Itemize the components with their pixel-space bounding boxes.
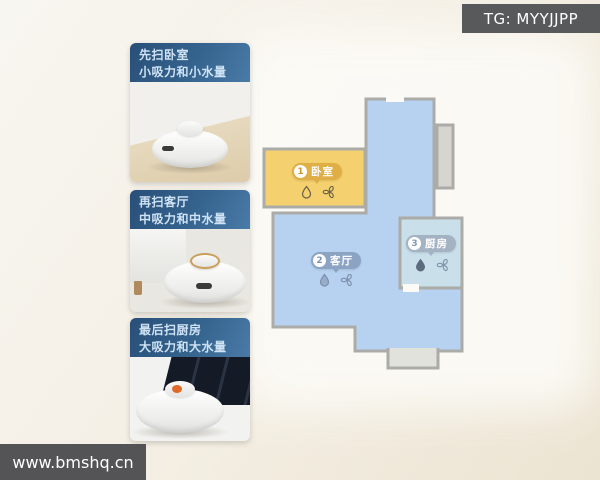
robot-sensor (162, 146, 174, 151)
water-drop-icon (300, 185, 314, 199)
robot-body (152, 130, 228, 168)
dock-tab (388, 348, 438, 368)
room-number: 1 (294, 165, 307, 178)
door-gap-kitchen (403, 284, 419, 292)
robot-body (164, 261, 246, 303)
suction-fan-icon (437, 258, 451, 272)
watermark-telegram: TG: MYYJJPP (462, 4, 600, 33)
robot-orange-accent (172, 385, 182, 393)
badge-pointer (313, 179, 321, 184)
suction-fan-icon (323, 185, 337, 199)
robot-sensor (196, 283, 212, 289)
step-banner: 再扫客厅 中吸力和中水量 (130, 190, 250, 229)
balcony-niche (437, 125, 453, 188)
step-subtitle: 大吸力和大水量 (139, 339, 250, 356)
room-name: 客厅 (330, 253, 353, 268)
furniture-leg (134, 281, 142, 295)
watermark-website: www.bmshq.cn (0, 444, 146, 480)
floor-map (250, 90, 480, 375)
promo-screenshot: { "watermarks": { "top_right": "TG: MYYJ… (0, 0, 600, 480)
robot-vacuum (136, 389, 224, 433)
step-card-living: 再扫客厅 中吸力和中水量 (130, 190, 250, 312)
door-gap-top (386, 95, 404, 102)
step-title: 先扫卧室 (139, 47, 250, 64)
room-settings-kitchen (414, 258, 451, 272)
room-name: 卧室 (311, 164, 334, 179)
suction-fan-icon (341, 273, 355, 287)
badge-pointer (427, 251, 435, 256)
room-settings-living (318, 273, 355, 287)
step-banner: 最后扫厨房 大吸力和大水量 (130, 318, 250, 357)
room-badge-living[interactable]: 2 客厅 (311, 252, 361, 269)
room-number: 2 (313, 254, 326, 267)
robot-photo-living (130, 229, 250, 312)
robot-body (136, 389, 224, 433)
robot-photo-kitchen (130, 357, 250, 441)
room-name: 厨房 (425, 236, 448, 251)
robot-lidar-turret-gold (190, 253, 220, 269)
robot-photo-bedroom (130, 82, 250, 182)
robot-vacuum (164, 261, 246, 303)
room-badge-kitchen[interactable]: 3 厨房 (406, 235, 456, 252)
water-drop-icon (414, 258, 428, 272)
room-badge-bedroom[interactable]: 1 卧室 (292, 163, 342, 180)
room-settings-bedroom (300, 185, 337, 199)
step-banner: 先扫卧室 小吸力和小水量 (130, 43, 250, 82)
robot-vacuum (152, 130, 228, 168)
step-card-kitchen: 最后扫厨房 大吸力和大水量 (130, 318, 250, 441)
step-card-bedroom: 先扫卧室 小吸力和小水量 (130, 43, 250, 182)
step-subtitle: 小吸力和小水量 (139, 64, 250, 81)
robot-lidar-turret (177, 121, 203, 136)
step-title: 再扫客厅 (139, 194, 250, 211)
water-drop-icon (318, 273, 332, 287)
room-number: 3 (408, 237, 421, 250)
step-subtitle: 中吸力和中水量 (139, 211, 250, 228)
step-title: 最后扫厨房 (139, 322, 250, 339)
